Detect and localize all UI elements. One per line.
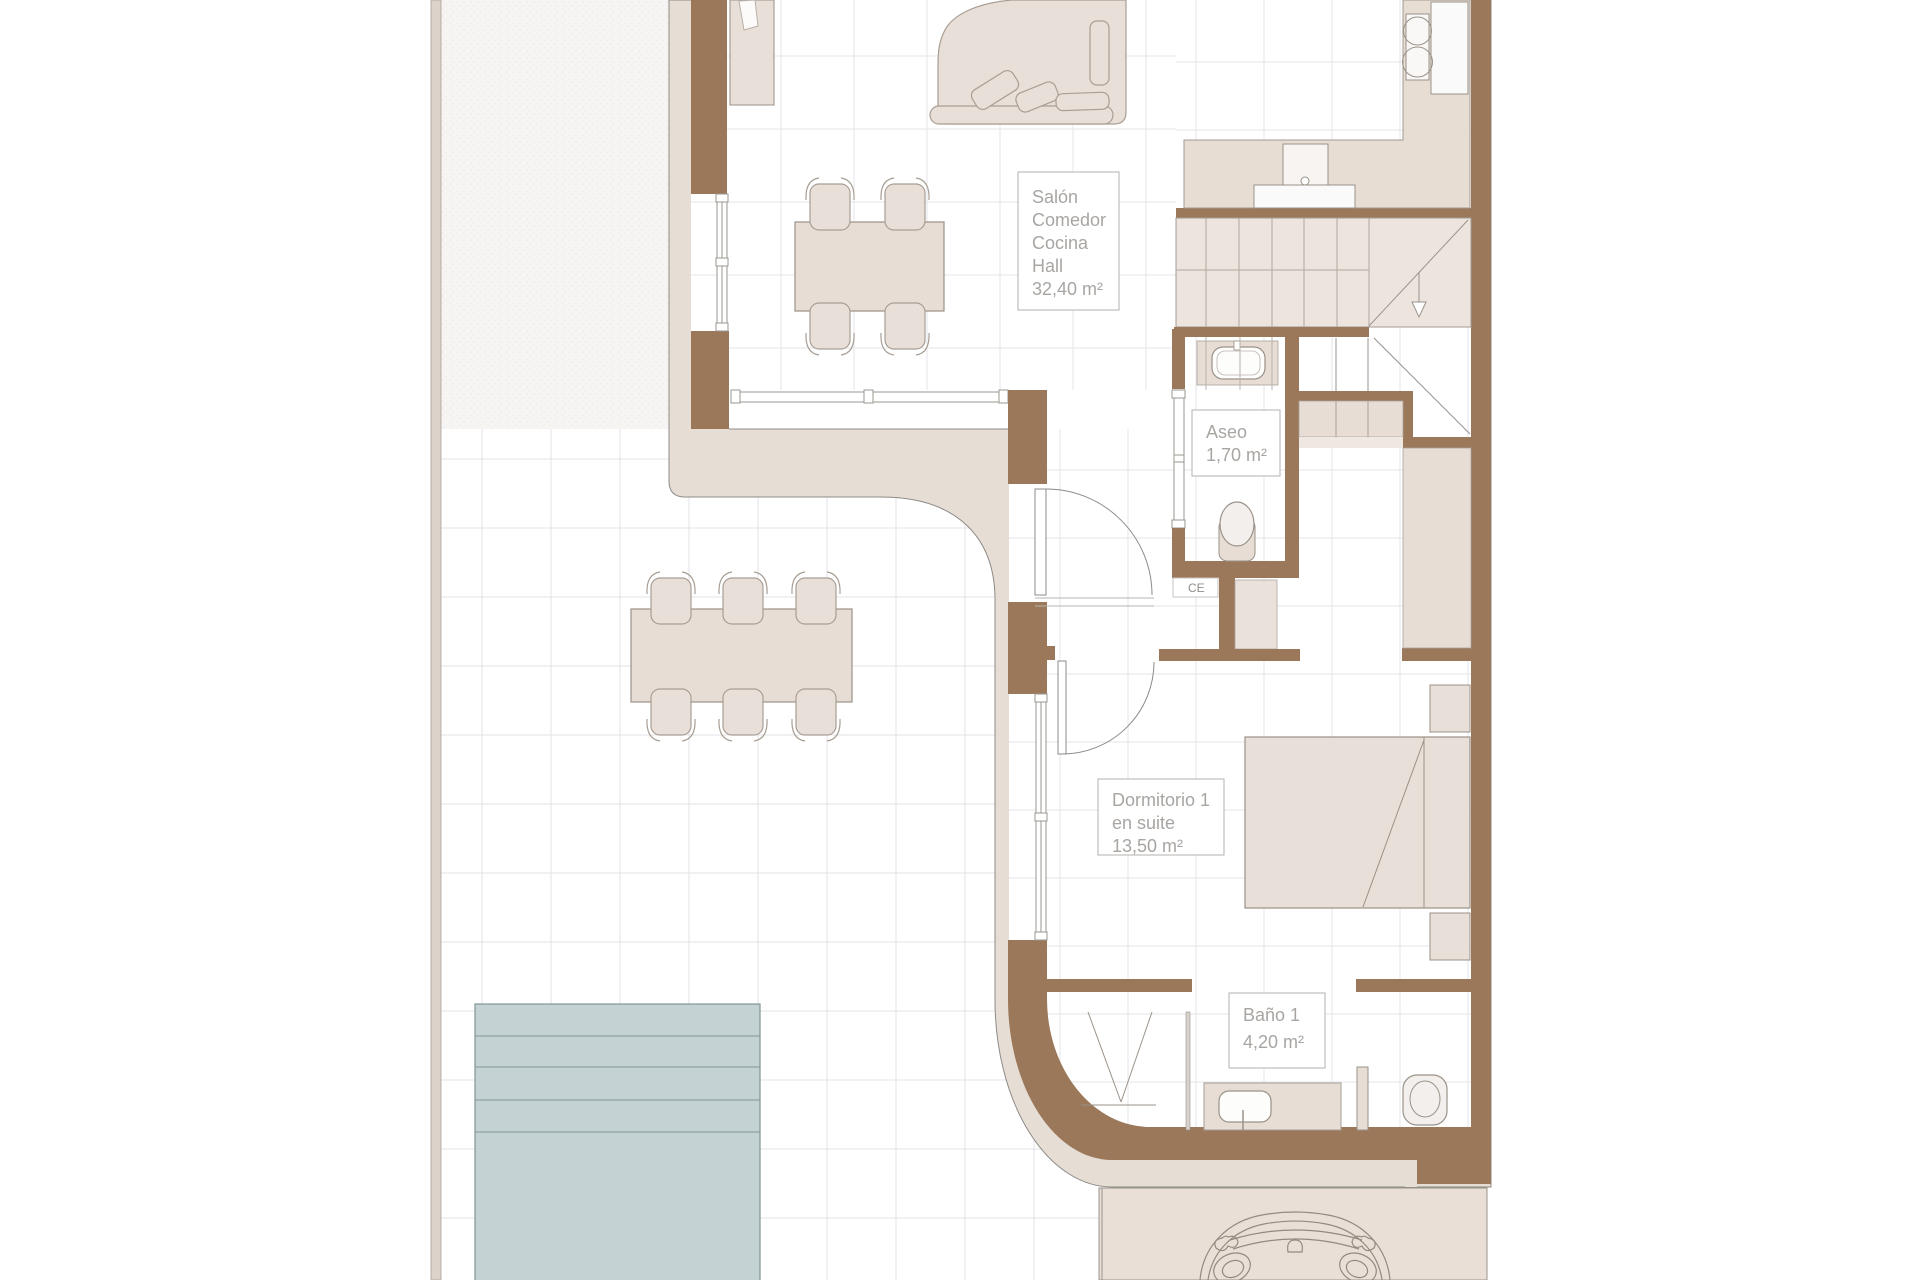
svg-text:4,20 m²: 4,20 m² — [1243, 1032, 1304, 1052]
svg-text:Baño 1: Baño 1 — [1243, 1005, 1300, 1025]
svg-text:Hall: Hall — [1032, 256, 1063, 276]
svg-text:Salón: Salón — [1032, 187, 1078, 207]
svg-text:13,50 m²: 13,50 m² — [1112, 836, 1183, 856]
svg-text:Aseo: Aseo — [1206, 422, 1247, 442]
svg-text:1,70 m²: 1,70 m² — [1206, 445, 1267, 465]
svg-text:Cocina: Cocina — [1032, 233, 1089, 253]
svg-text:Comedor: Comedor — [1032, 210, 1106, 230]
svg-text:32,40 m²: 32,40 m² — [1032, 279, 1103, 299]
svg-text:Dormitorio 1: Dormitorio 1 — [1112, 790, 1210, 810]
svg-text:CE: CE — [1188, 581, 1205, 595]
svg-text:en suite: en suite — [1112, 813, 1175, 833]
